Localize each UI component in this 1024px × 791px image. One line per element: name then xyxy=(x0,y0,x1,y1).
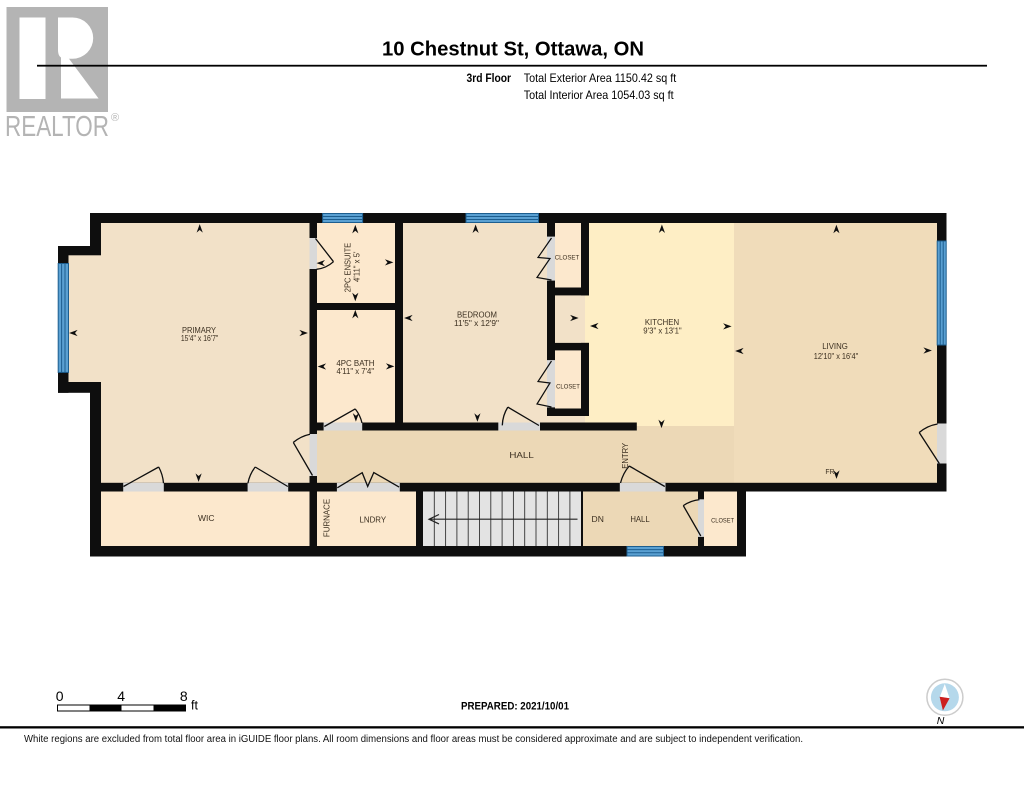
svg-text:LNDRY: LNDRY xyxy=(360,516,387,525)
svg-text:Total Exterior Area 1150.42 sq: Total Exterior Area 1150.42 sq ft xyxy=(524,72,677,85)
svg-text:ENTRY: ENTRY xyxy=(621,442,630,468)
svg-text:CLOSET: CLOSET xyxy=(711,517,734,524)
svg-text:2PC ENSUITE: 2PC ENSUITE xyxy=(344,242,353,292)
svg-text:3rd Floor: 3rd Floor xyxy=(467,72,512,85)
svg-text:8: 8 xyxy=(180,688,188,704)
svg-text:DN: DN xyxy=(592,515,604,524)
svg-text:WIC: WIC xyxy=(198,514,215,523)
svg-text:10 Chestnut St, Ottawa, ON: 10 Chestnut St, Ottawa, ON xyxy=(382,38,644,61)
svg-text:LIVING: LIVING xyxy=(822,342,848,351)
svg-text:4: 4 xyxy=(117,688,125,704)
svg-text:®: ® xyxy=(111,112,119,124)
svg-text:FR: FR xyxy=(825,467,835,476)
svg-text:4'11" x 7'4": 4'11" x 7'4" xyxy=(337,367,375,376)
svg-text:9'3" x 13'1": 9'3" x 13'1" xyxy=(643,327,681,336)
svg-text:15'4" x 16'7": 15'4" x 16'7" xyxy=(181,334,219,343)
svg-text:ft: ft xyxy=(191,699,198,713)
svg-text:REALTOR: REALTOR xyxy=(5,111,109,143)
svg-text:11'5" x 12'9": 11'5" x 12'9" xyxy=(454,319,499,328)
svg-text:HALL: HALL xyxy=(630,515,650,524)
svg-text:N: N xyxy=(937,715,945,727)
svg-text:PREPARED: 2021/10/01: PREPARED: 2021/10/01 xyxy=(461,701,569,713)
svg-text:4'11" x 5': 4'11" x 5' xyxy=(353,251,362,282)
svg-text:CLOSET: CLOSET xyxy=(556,384,580,391)
svg-text:Total Interior Area 1054.03 sq: Total Interior Area 1054.03 sq ft xyxy=(524,89,674,102)
svg-text:White regions are excluded fro: White regions are excluded from total fl… xyxy=(24,734,803,745)
svg-text:0: 0 xyxy=(56,688,64,704)
svg-text:CLOSET: CLOSET xyxy=(555,254,580,261)
svg-text:FURNACE: FURNACE xyxy=(322,498,331,537)
svg-text:HALL: HALL xyxy=(509,451,534,460)
svg-text:12'10" x 16'4": 12'10" x 16'4" xyxy=(814,352,859,361)
